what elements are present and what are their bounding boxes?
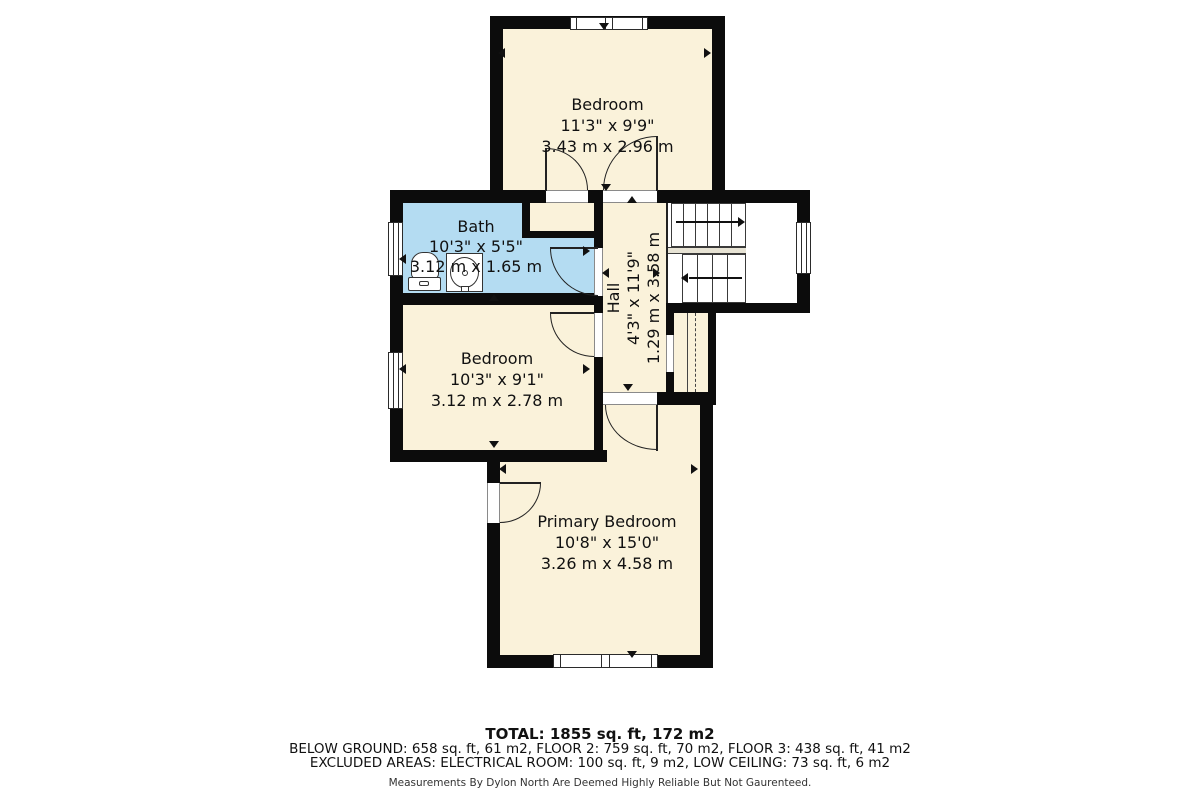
window-glazing bbox=[393, 353, 394, 408]
door-opening bbox=[603, 392, 657, 405]
toilet-handle-icon bbox=[419, 281, 429, 286]
window bbox=[796, 222, 811, 274]
stair-tread bbox=[707, 203, 708, 247]
room-label-primary-bedroom: Primary Bedroom 10'8" x 15'0" 3.26 m x 4… bbox=[500, 511, 714, 574]
room-dim-metric: 3.26 m x 4.58 m bbox=[500, 553, 714, 574]
door-leaf bbox=[550, 247, 598, 249]
stair-tread bbox=[695, 203, 696, 247]
dimension-marker bbox=[499, 464, 506, 474]
wall bbox=[390, 190, 546, 203]
stair-direction-arrow-up bbox=[676, 221, 739, 223]
summary-excluded-areas: EXCLUDED AREAS: ELECTRICAL ROOM: 100 sq.… bbox=[0, 755, 1200, 771]
window-glazing bbox=[806, 223, 807, 273]
room-label-bedroom-top: Bedroom 11'3" x 9'9" 3.43 m x 2.96 m bbox=[503, 94, 712, 157]
room-dim-metric: 3.43 m x 2.96 m bbox=[503, 136, 712, 157]
wall bbox=[712, 16, 725, 203]
room-dim-imperial: 10'3" x 5'5" bbox=[396, 237, 556, 257]
window-mullion bbox=[612, 18, 613, 29]
stair-direction-arrow-down bbox=[689, 277, 742, 279]
window-mullion bbox=[642, 18, 643, 29]
dimension-marker bbox=[704, 48, 711, 58]
dimension-marker bbox=[601, 184, 611, 191]
stair-tread bbox=[683, 203, 684, 247]
wall bbox=[594, 296, 603, 313]
measurement-disclaimer: Measurements By Dylon North Are Deemed H… bbox=[0, 777, 1200, 789]
room-dim-metric: 3.12 m x 2.78 m bbox=[397, 390, 597, 411]
low-ceiling-corridor-floor bbox=[674, 313, 708, 392]
stair-tread bbox=[719, 203, 720, 247]
dimension-marker bbox=[498, 48, 505, 58]
room-name: Bath bbox=[396, 217, 556, 237]
dimension-marker bbox=[627, 196, 637, 203]
dimension-marker bbox=[583, 246, 590, 256]
window bbox=[570, 17, 648, 30]
dimension-marker bbox=[623, 384, 633, 391]
dimension-marker bbox=[599, 23, 609, 30]
window-glazing bbox=[393, 223, 394, 275]
sink-faucet-icon bbox=[461, 286, 469, 292]
window-mullion bbox=[576, 18, 577, 29]
ceiling-break-line bbox=[687, 313, 688, 392]
wall bbox=[657, 190, 810, 203]
stair-tread bbox=[731, 203, 732, 247]
room-name: Primary Bedroom bbox=[500, 511, 714, 532]
stair-arrow-head-left bbox=[681, 273, 688, 283]
stair-landing bbox=[668, 247, 746, 254]
window-glazing bbox=[801, 223, 802, 273]
room-dim-metric: 1.29 m x 3.58 m bbox=[644, 232, 664, 364]
room-name: Hall bbox=[604, 232, 624, 364]
wall bbox=[708, 303, 716, 392]
window bbox=[553, 654, 658, 668]
wall bbox=[490, 16, 503, 203]
stair-railing bbox=[666, 203, 668, 303]
wall bbox=[666, 303, 810, 313]
wall bbox=[588, 190, 603, 203]
window-mullion bbox=[560, 655, 561, 667]
dimension-marker bbox=[627, 651, 637, 658]
door-opening bbox=[666, 335, 674, 372]
room-dim-imperial: 10'3" x 9'1" bbox=[397, 369, 597, 390]
dimension-marker bbox=[489, 441, 499, 448]
room-dim-imperial: 10'8" x 15'0" bbox=[500, 532, 714, 553]
stair-arrow-head-right bbox=[738, 217, 745, 227]
room-name: Bedroom bbox=[503, 94, 712, 115]
dimension-marker bbox=[691, 464, 698, 474]
room-dim-metric: 3.12 m x 1.65 m bbox=[396, 257, 556, 277]
room-label-bath: Bath 10'3" x 5'5" 3.12 m x 1.65 m bbox=[396, 217, 556, 277]
room-name: Bedroom bbox=[397, 348, 597, 369]
window-mullion bbox=[609, 655, 610, 667]
door-opening bbox=[546, 190, 588, 203]
wall bbox=[594, 203, 603, 248]
dimension-marker bbox=[489, 294, 499, 301]
room-dim-imperial: 11'3" x 9'9" bbox=[503, 115, 712, 136]
window-mullion bbox=[651, 655, 652, 667]
door-opening bbox=[487, 483, 500, 523]
window-mullion bbox=[601, 655, 602, 667]
floor-plan: Bedroom 11'3" x 9'9" 3.43 m x 2.96 m Bat… bbox=[0, 0, 1200, 805]
room-label-hall: Hall 4'3" x 11'9" 1.29 m x 3.58 m bbox=[604, 232, 664, 364]
room-label-bedroom-mid: Bedroom 10'3" x 9'1" 3.12 m x 2.78 m bbox=[397, 348, 597, 411]
ceiling-break-dashed-line bbox=[695, 313, 696, 392]
room-dim-imperial: 4'3" x 11'9" bbox=[624, 232, 644, 364]
door-leaf bbox=[656, 405, 658, 451]
door-leaf bbox=[500, 482, 541, 484]
door-leaf bbox=[550, 312, 594, 314]
